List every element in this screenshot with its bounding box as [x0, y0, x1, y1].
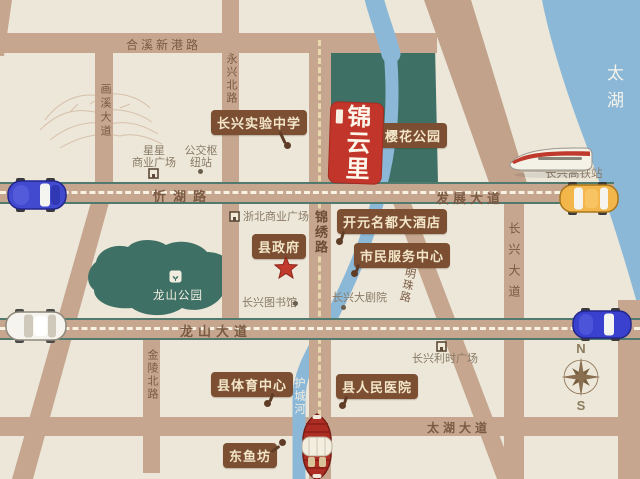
compass: N S	[548, 342, 614, 414]
road-label-yongxing: 永兴北路	[223, 53, 239, 105]
pointer-dot-dongyufang	[279, 439, 286, 446]
poi-library: 长兴图书馆	[242, 297, 297, 309]
building-icon-lishi	[436, 341, 447, 352]
poi-lishi-plaza: 长兴利时广场	[412, 353, 478, 365]
road-label-fazhan: 发展大道	[436, 188, 504, 207]
road-label-changxing: 长兴大道	[506, 222, 523, 306]
road-hexin-xingang	[0, 33, 437, 53]
county-government-star-icon	[274, 256, 298, 279]
callout-kaiyuan-hotel: 开元名都大酒店	[337, 209, 447, 234]
library-dot	[293, 301, 298, 306]
xinhu-center-dash	[0, 191, 614, 194]
longshan-park-green	[88, 240, 235, 315]
location-map: 合溪新港路 画溪大道 永兴北路 忻湖路 发展大道 锦绣路 龙山大道 金陵北路 明…	[0, 0, 640, 479]
compass-south-label: S	[548, 399, 614, 412]
road-xinhu-fazhan	[0, 182, 614, 204]
poi-grand-theater: 长兴大剧院	[332, 292, 387, 304]
building-icon-xingxing	[148, 168, 159, 179]
pointer-dot-civic	[351, 270, 358, 277]
longshan-center-dash	[0, 327, 640, 330]
bus-hub-dot	[198, 169, 203, 174]
road-label-longshan: 龙山大道	[180, 321, 252, 340]
river-label: 护城河	[291, 377, 307, 416]
road-label-hexin: 合溪新港路	[126, 36, 201, 53]
yellow-taxi-icon	[558, 182, 620, 215]
pointer-dot-hospital	[339, 402, 346, 409]
blue-sedan-icon	[571, 308, 633, 341]
compass-north-label: N	[548, 342, 614, 355]
building-icon-zhebei	[229, 211, 240, 222]
road-label-xinhu: 忻湖路	[153, 186, 213, 205]
callout-experimental-school: 长兴实验中学	[211, 110, 307, 135]
blue-suv-icon	[6, 178, 68, 212]
project-logo: 锦云里	[328, 101, 385, 185]
poi-zhebei-plaza: 浙北商业广场	[243, 211, 309, 223]
compass-rose-icon	[553, 355, 609, 399]
lake-label: 太湖	[601, 64, 626, 118]
road-label-huaxi: 画溪大道	[97, 83, 113, 139]
poi-xingxing-plaza: 星星 商业广场	[124, 145, 184, 169]
boat-icon	[294, 412, 340, 479]
logo-seal	[336, 109, 343, 123]
road-label-jinling: 金陵北路	[144, 349, 160, 401]
pointer-dot-sports	[264, 400, 271, 407]
logo-text: 锦云里	[343, 104, 370, 183]
callout-sakura-park: 樱花公园	[379, 123, 447, 148]
theater-dot	[341, 305, 346, 310]
longshan-park-label: 龙山公园	[153, 287, 203, 303]
callout-sports-center: 县体育中心	[211, 372, 293, 397]
road-longshan-avenue	[0, 318, 640, 340]
callout-people-hospital: 县人民医院	[336, 374, 418, 399]
callout-citizen-service: 市民服务中心	[354, 243, 450, 268]
high-speed-train-icon	[504, 140, 596, 180]
park-icon	[169, 270, 182, 283]
poi-bus-hub: 公交枢 纽站	[176, 145, 226, 169]
road-label-jinxiu: 锦绣路	[311, 209, 330, 256]
pointer-dot-hotel	[336, 238, 343, 245]
white-car-icon	[4, 309, 68, 343]
callout-dongyufang: 东鱼坊	[223, 443, 277, 468]
road-label-taihu-avenue: 太湖大道	[427, 419, 491, 436]
pointer-dot-school	[284, 142, 291, 149]
